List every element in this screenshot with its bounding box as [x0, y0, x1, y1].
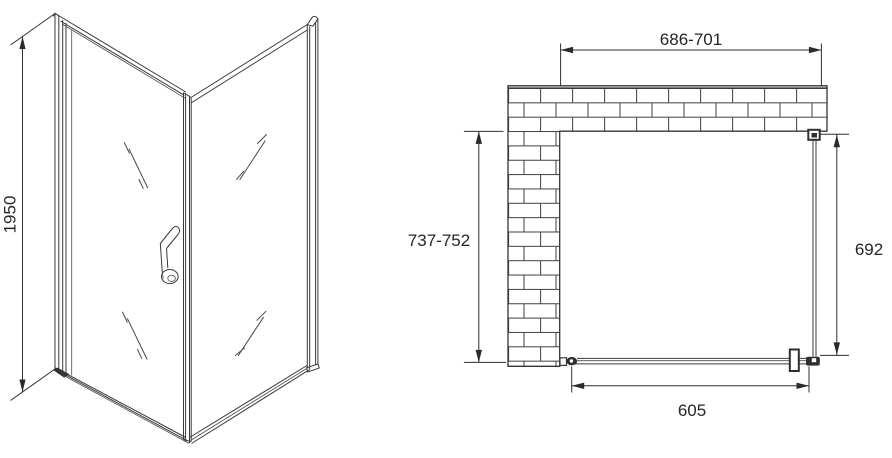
- door-width-dimension: 605: [572, 367, 809, 421]
- door-top-rail: [56, 14, 186, 95]
- shower-enclosure-technical-drawing: 1950: [0, 0, 892, 458]
- door-handle-3d: [160, 226, 179, 283]
- wall-profile: [53, 13, 72, 377]
- brick-wall: [508, 88, 827, 366]
- door-bottom-rail: [55, 368, 187, 441]
- plan-view: 686-701 737-752 692 605: [408, 30, 883, 420]
- front-height-dimension: 1950: [1, 14, 56, 401]
- back-post: [307, 16, 320, 372]
- height-label: 1950: [1, 196, 20, 234]
- corner-connector-block: [806, 357, 820, 366]
- side-panel-top-rail: [191, 25, 307, 104]
- door-panel-plan: [576, 358, 807, 364]
- depth-dimension: 737-752: [408, 131, 506, 362]
- side-glass-panel: [813, 140, 816, 357]
- depth-label: 737-752: [408, 231, 470, 250]
- front-isometric-view: 1950: [1, 13, 320, 443]
- corner-post: [184, 93, 192, 444]
- opening-width-label: 686-701: [660, 30, 722, 49]
- side-panel-dimension: 692: [820, 134, 883, 355]
- wall-bracket: [808, 130, 819, 140]
- glass-reflection-marks: [123, 135, 267, 360]
- side-panel-label: 692: [855, 240, 883, 259]
- door-width-label: 605: [678, 401, 706, 420]
- side-panel-bottom-rail: [190, 366, 310, 444]
- drawing-canvas: 1950: [0, 0, 892, 458]
- opening-width-dimension: 686-701: [561, 30, 822, 86]
- hinge-pivot: [560, 357, 577, 365]
- door-handle-plan: [790, 350, 799, 372]
